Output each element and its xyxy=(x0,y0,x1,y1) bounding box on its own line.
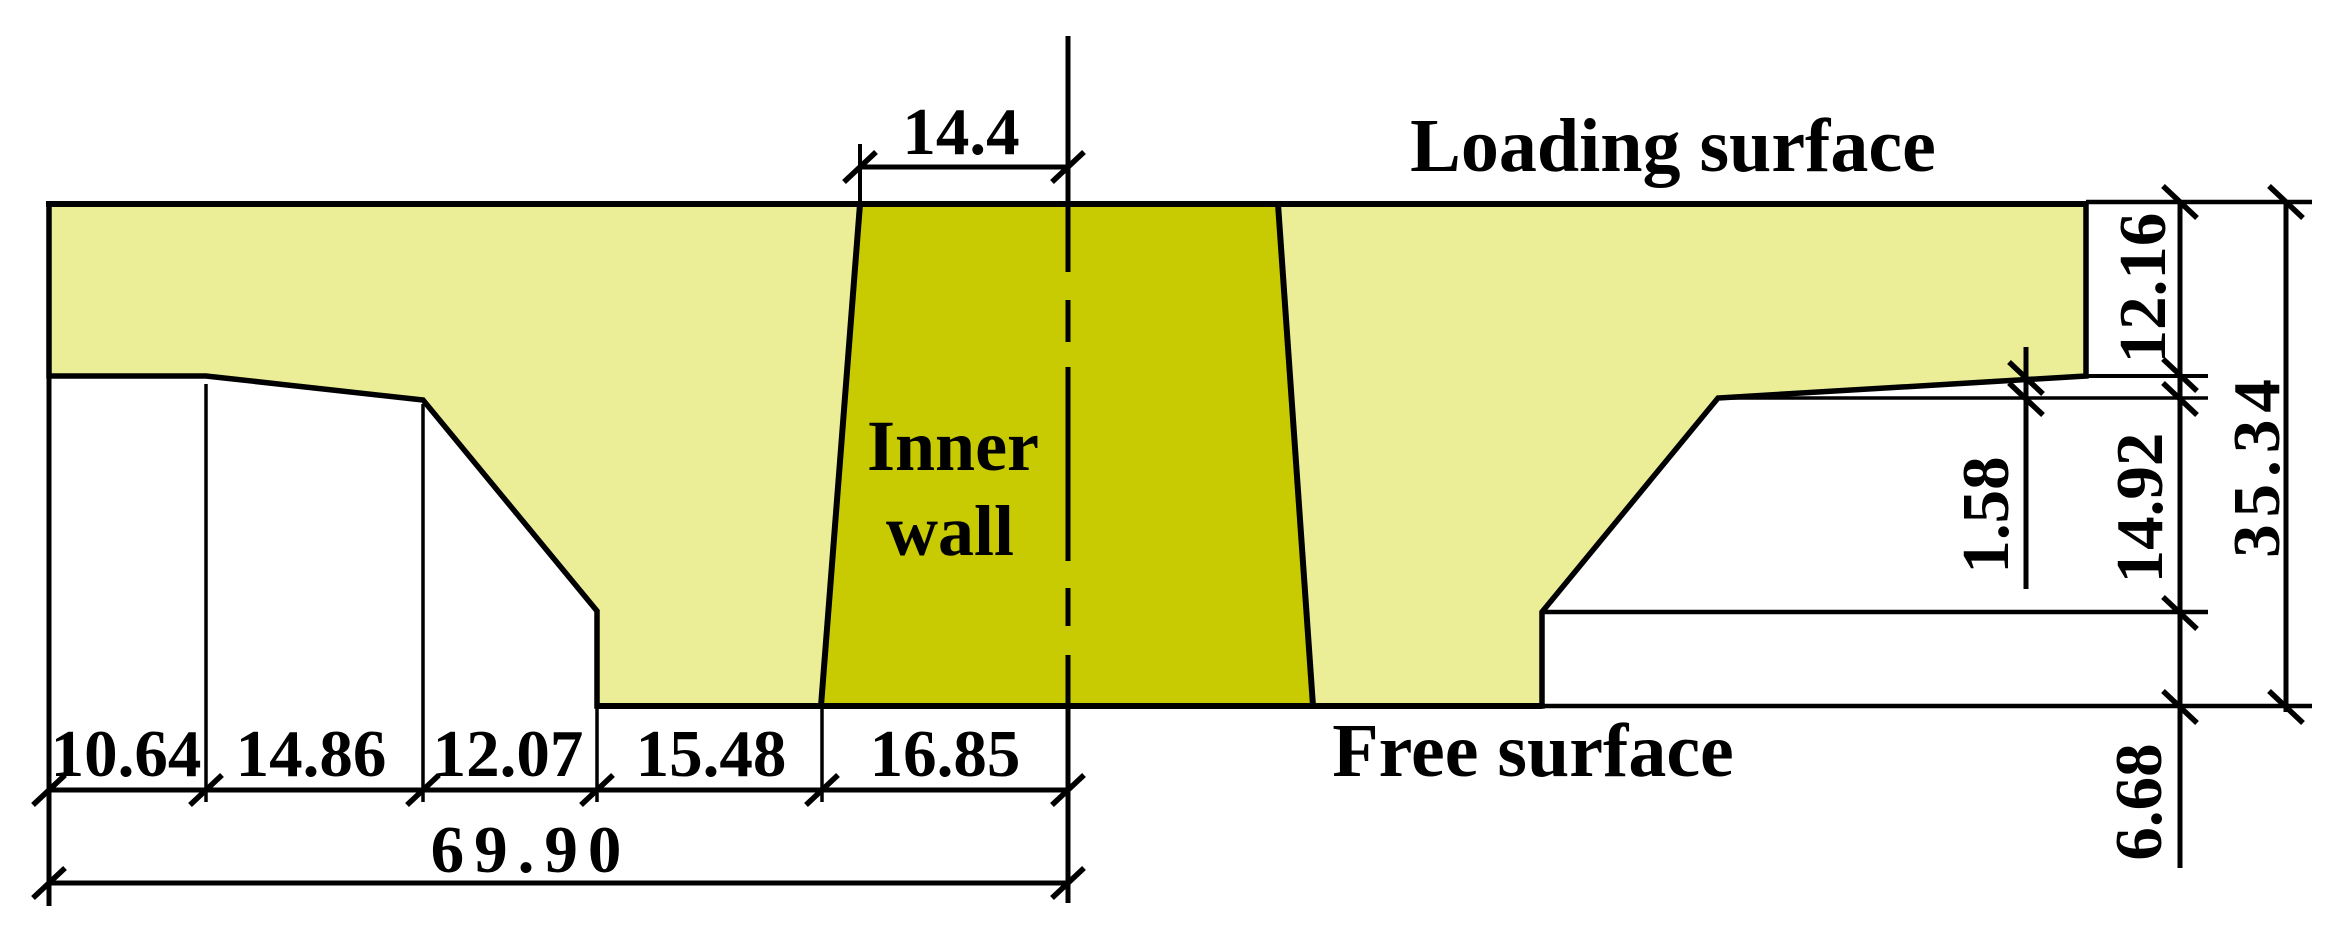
svg-text:wall: wall xyxy=(886,491,1014,571)
svg-text:10.64: 10.64 xyxy=(51,717,202,791)
svg-text:35.34: 35.34 xyxy=(2220,372,2294,558)
svg-text:12.07: 12.07 xyxy=(433,717,584,791)
svg-text:69.90: 69.90 xyxy=(431,813,632,887)
svg-text:14.92: 14.92 xyxy=(2103,433,2177,584)
svg-text:14.4: 14.4 xyxy=(902,95,1019,169)
svg-text:12.16: 12.16 xyxy=(2106,213,2180,364)
svg-text:16.85: 16.85 xyxy=(870,717,1021,791)
svg-text:Free surface: Free surface xyxy=(1332,709,1734,793)
svg-text:Inner: Inner xyxy=(867,406,1039,486)
svg-text:1.58: 1.58 xyxy=(1949,456,2023,573)
svg-text:15.48: 15.48 xyxy=(636,717,787,791)
svg-text:14.86: 14.86 xyxy=(236,717,387,791)
svg-text:Loading surface: Loading surface xyxy=(1410,104,1936,188)
svg-text:6.68: 6.68 xyxy=(2102,743,2176,860)
